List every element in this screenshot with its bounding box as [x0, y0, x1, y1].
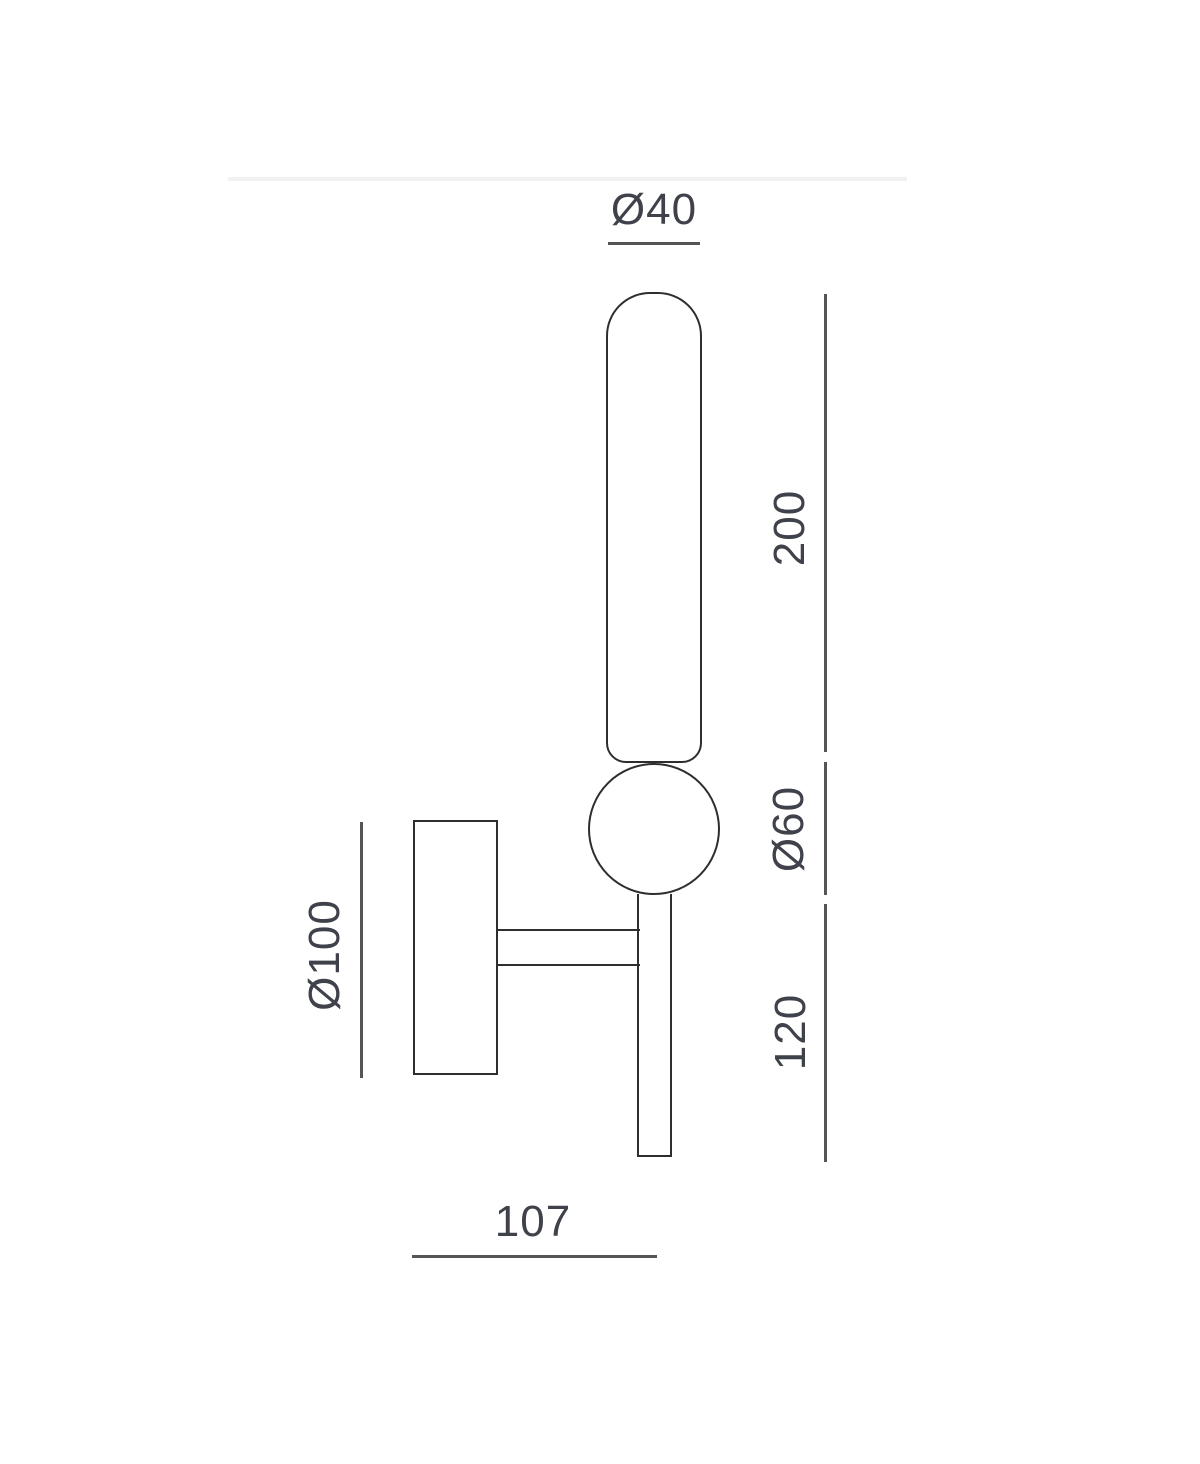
label-mount-diameter: Ø100 — [300, 855, 350, 1055]
dim-line-depth — [412, 1255, 657, 1258]
page-divider-line — [228, 177, 907, 181]
dim-line-stem-length — [824, 904, 827, 1162]
mount-arm-outline — [496, 929, 640, 966]
label-sphere-diameter: Ø60 — [764, 729, 814, 929]
dim-line-mount-diameter — [360, 822, 363, 1078]
lamp-tube-outline — [606, 292, 702, 763]
dim-line-tube-length — [824, 294, 827, 752]
label-tube-length: 200 — [765, 428, 815, 628]
label-stem-length: 120 — [766, 932, 816, 1132]
lamp-sphere-outline — [588, 763, 720, 895]
lamp-stem-outline — [637, 894, 672, 1157]
dim-line-tube-diameter — [608, 242, 700, 245]
wall-mount-outline — [413, 820, 498, 1075]
dimension-drawing-canvas: Ø40 200 Ø60 120 Ø100 107 — [0, 0, 1200, 1464]
label-tube-diameter: Ø40 — [554, 185, 754, 235]
label-depth: 107 — [433, 1197, 633, 1247]
dim-line-sphere-diameter — [824, 762, 827, 895]
